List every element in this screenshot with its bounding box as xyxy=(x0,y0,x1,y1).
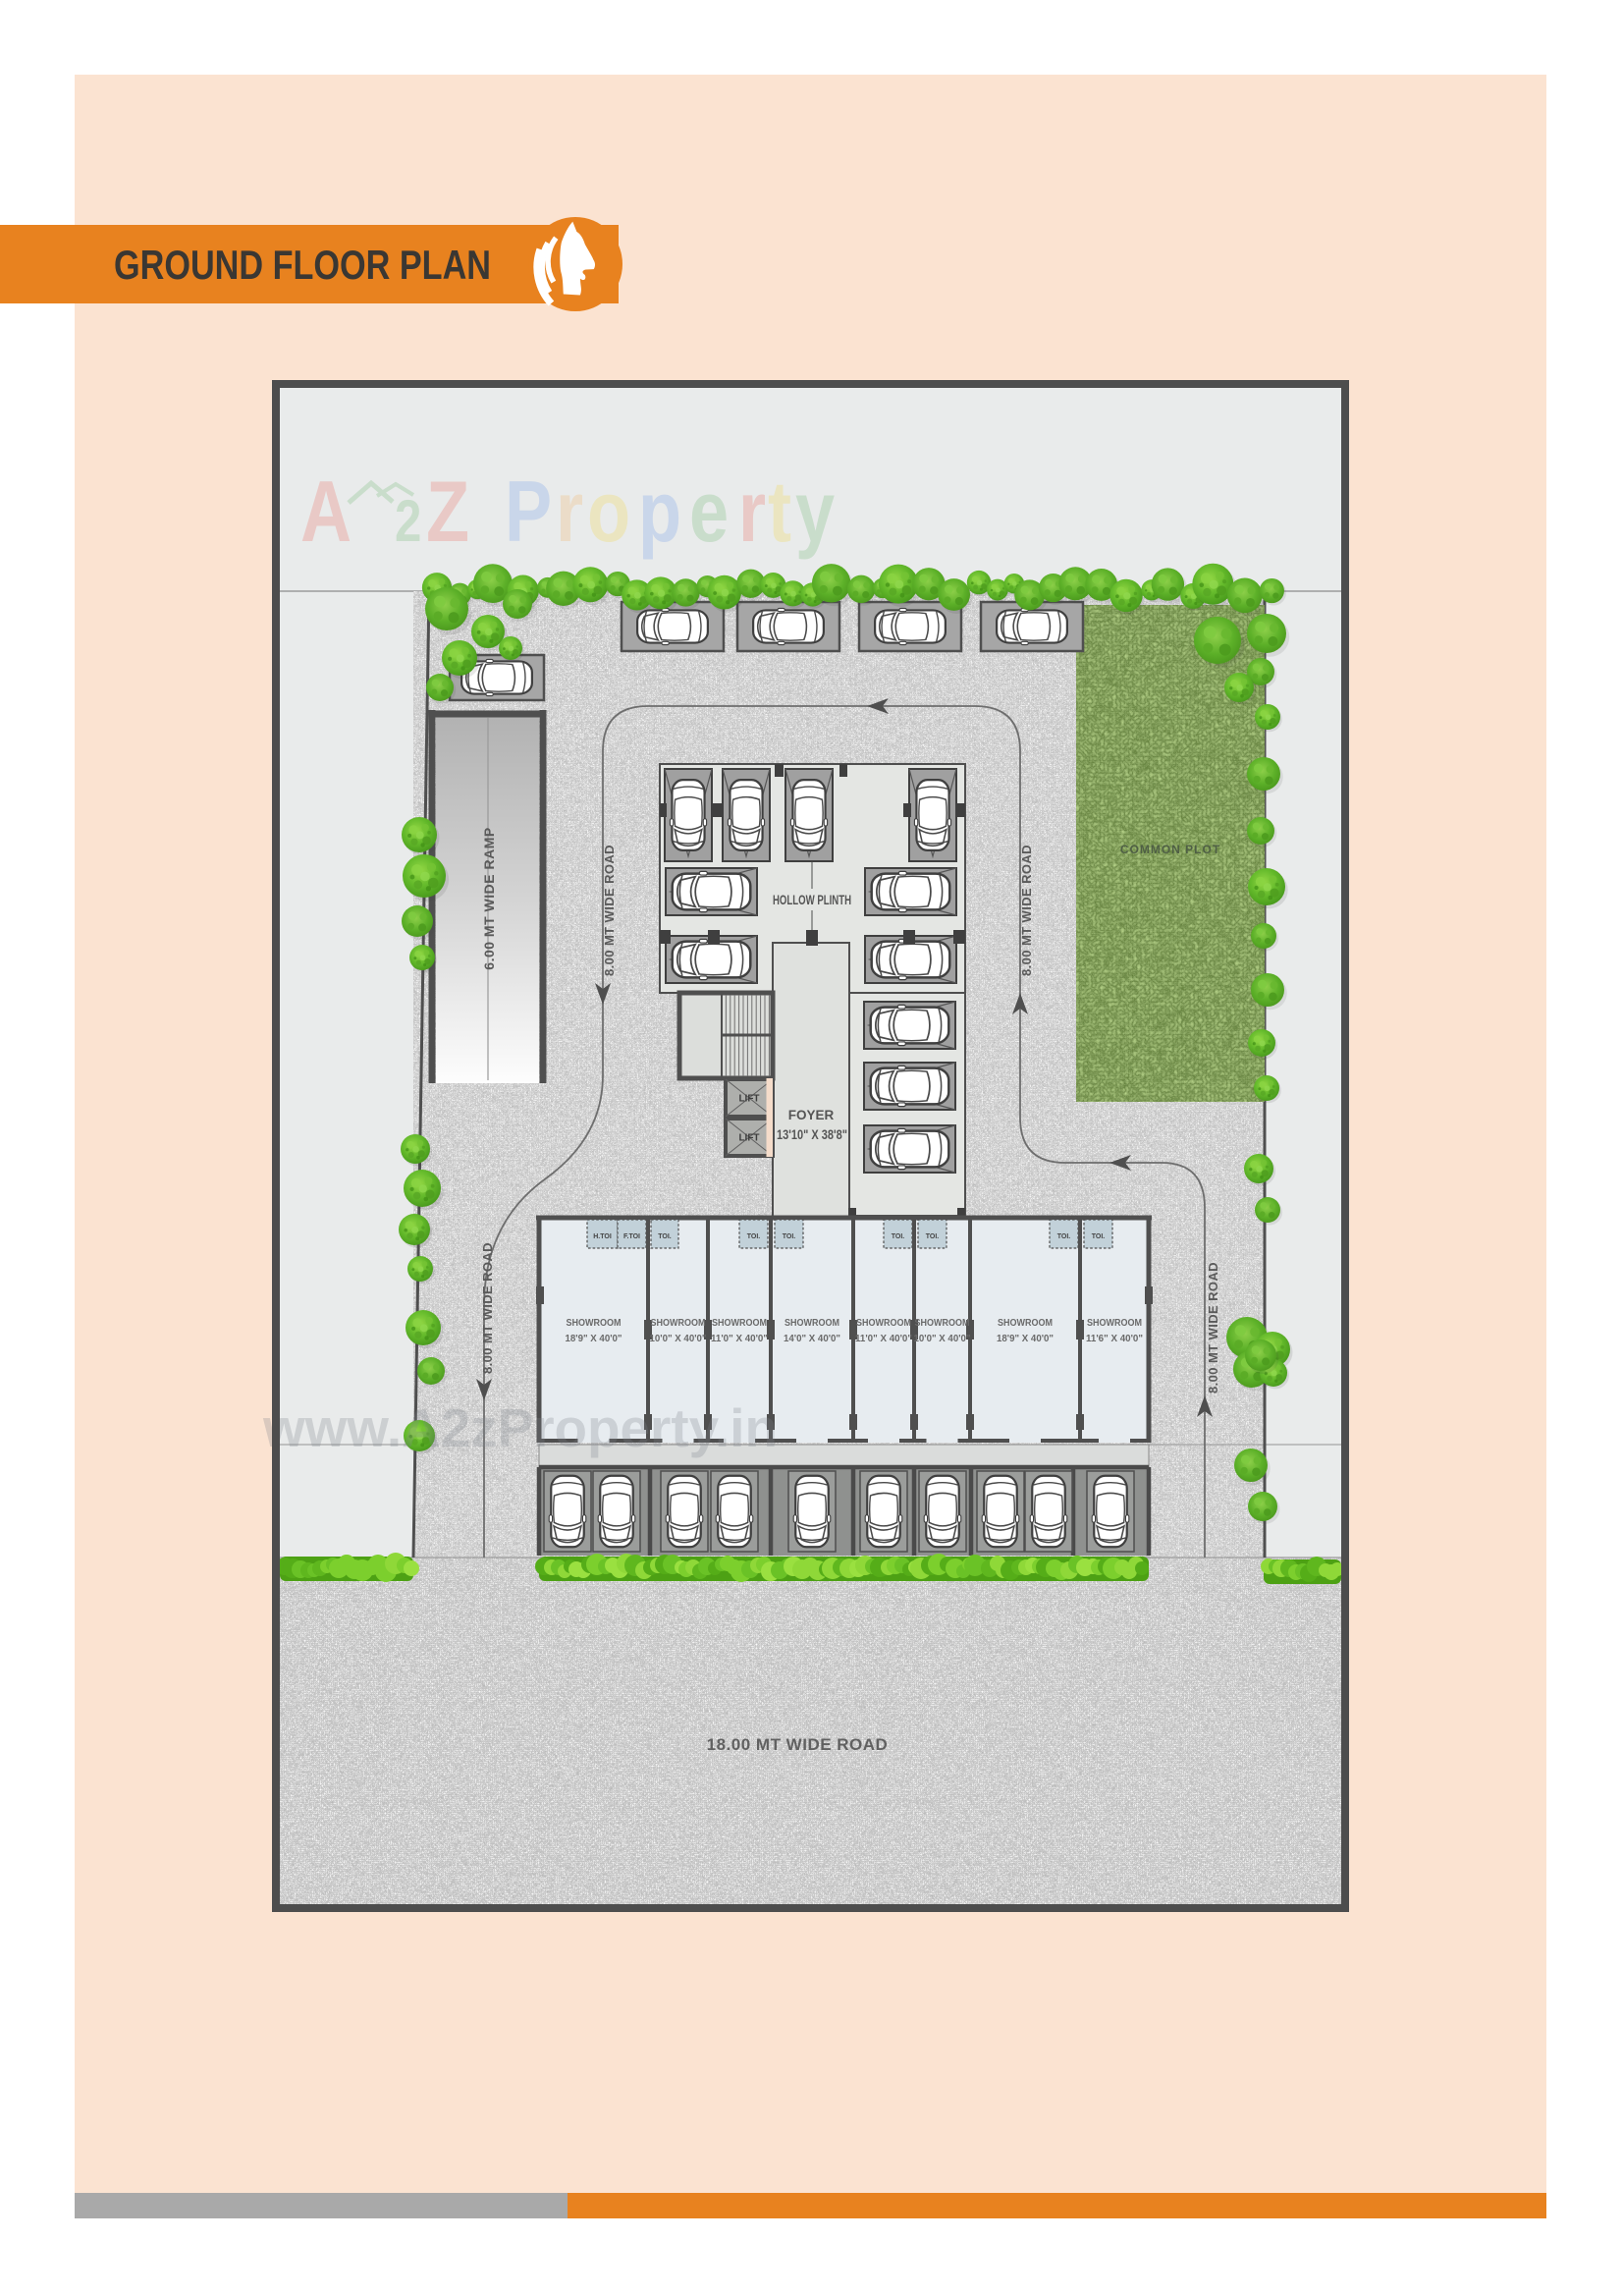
svg-text:o: o xyxy=(587,464,630,560)
svg-text:e: e xyxy=(689,464,729,560)
svg-text:A: A xyxy=(300,464,352,560)
svg-text:SHOWROOM: SHOWROOM xyxy=(567,1317,622,1329)
svg-text:2: 2 xyxy=(395,487,421,554)
svg-text:SHOWROOM: SHOWROOM xyxy=(1087,1317,1142,1329)
svg-text:LIFT: LIFT xyxy=(738,1094,759,1105)
svg-text:y: y xyxy=(795,464,835,560)
svg-text:SHOWROOM: SHOWROOM xyxy=(784,1317,839,1329)
svg-text:Z: Z xyxy=(426,464,469,560)
svg-text:10'0" X 40'0": 10'0" X 40'0" xyxy=(650,1333,707,1344)
svg-text:SHOWROOM: SHOWROOM xyxy=(856,1317,911,1329)
svg-text:10'0" X 40'0": 10'0" X 40'0" xyxy=(914,1333,971,1344)
svg-text:p: p xyxy=(638,464,681,560)
svg-text:8.00 MT WIDE ROAD: 8.00 MT WIDE ROAD xyxy=(480,1242,495,1374)
svg-text:SHOWROOM: SHOWROOM xyxy=(712,1317,767,1329)
svg-text:t: t xyxy=(768,464,791,560)
svg-text:11'0" X 40'0": 11'0" X 40'0" xyxy=(855,1333,912,1344)
svg-text:8.00 MT WIDE ROAD: 8.00 MT WIDE ROAD xyxy=(1019,845,1034,976)
svg-text:HOLLOW PLINTH: HOLLOW PLINTH xyxy=(773,893,851,907)
svg-text:TOI.: TOI. xyxy=(783,1233,796,1240)
svg-text:r: r xyxy=(556,464,583,560)
svg-text:TOI.: TOI. xyxy=(892,1233,905,1240)
svg-text:18'9" X 40'0": 18'9" X 40'0" xyxy=(997,1333,1054,1344)
svg-text:18'9" X 40'0": 18'9" X 40'0" xyxy=(566,1333,622,1344)
svg-text:GROUND FLOOR PLAN: GROUND FLOOR PLAN xyxy=(114,242,491,288)
svg-text:SHOWROOM: SHOWROOM xyxy=(915,1317,970,1329)
svg-text:TOI.: TOI. xyxy=(1092,1233,1106,1240)
svg-text:FOYER: FOYER xyxy=(788,1108,835,1122)
svg-text:SHOWROOM: SHOWROOM xyxy=(998,1317,1053,1329)
svg-text:www.A2zProperty.in: www.A2zProperty.in xyxy=(262,1397,778,1458)
svg-text:TOI.: TOI. xyxy=(747,1233,761,1240)
svg-text:r: r xyxy=(738,464,766,560)
svg-text:TOI.: TOI. xyxy=(1057,1233,1071,1240)
svg-text:P: P xyxy=(505,464,552,560)
svg-text:COMMON PLOT: COMMON PLOT xyxy=(1120,843,1220,856)
svg-text:SHOWROOM: SHOWROOM xyxy=(651,1317,706,1329)
svg-text:13'10" X 38'8": 13'10" X 38'8" xyxy=(777,1127,847,1142)
svg-text:11'0" X 40'0": 11'0" X 40'0" xyxy=(711,1333,768,1344)
svg-text:8.00 MT WIDE ROAD: 8.00 MT WIDE ROAD xyxy=(1206,1262,1220,1394)
svg-text:F.TOI: F.TOI xyxy=(623,1233,640,1240)
svg-text:6.00 MT WIDE RAMP: 6.00 MT WIDE RAMP xyxy=(481,827,497,969)
svg-text:18.00 MT WIDE ROAD: 18.00 MT WIDE ROAD xyxy=(707,1735,889,1754)
svg-text:TOI.: TOI. xyxy=(926,1233,940,1240)
svg-text:H.TOI: H.TOI xyxy=(593,1233,612,1240)
svg-text:LIFT: LIFT xyxy=(738,1133,759,1144)
svg-text:14'0" X 40'0": 14'0" X 40'0" xyxy=(784,1333,840,1344)
svg-text:8.00 MT WIDE ROAD: 8.00 MT WIDE ROAD xyxy=(602,845,617,976)
svg-text:11'6" X 40'0": 11'6" X 40'0" xyxy=(1086,1333,1143,1344)
svg-text:TOI.: TOI. xyxy=(658,1233,672,1240)
